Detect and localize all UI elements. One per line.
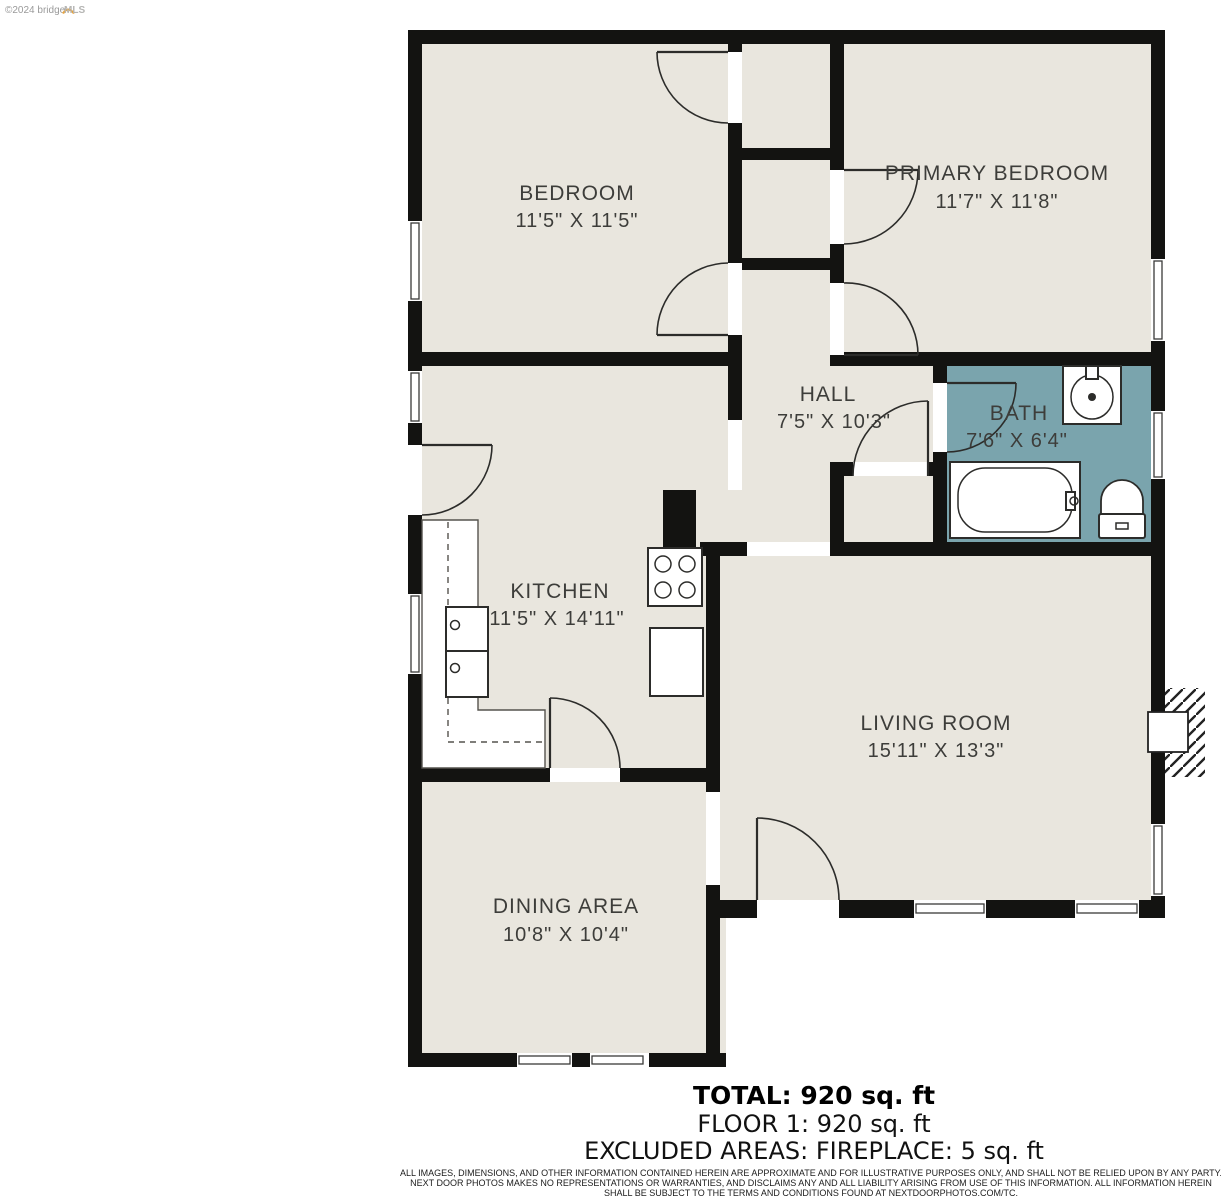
bedroom-dims: 11'5" X 11'5": [515, 210, 638, 232]
window-dining-bottom-1: [513, 1053, 576, 1067]
window-bath-right: [1151, 407, 1165, 483]
opening-primary-closet: [830, 170, 844, 244]
opening-front-entry: [757, 900, 839, 918]
summary: TOTAL: 920 sq. ft FLOOR 1: 920 sq. ft EX…: [584, 1081, 1044, 1165]
hall-label: HALL: [800, 383, 857, 406]
dining-area-dims: 10'8" X 10'4": [503, 924, 629, 946]
window-kitchen-left: [408, 590, 422, 678]
window-living-bottom-2: [1071, 900, 1143, 918]
chimney: [663, 490, 696, 548]
refrigerator: [650, 628, 703, 696]
toilet-bowl: [1101, 480, 1143, 514]
watermark: ©2024 bridge MLS: [5, 5, 85, 16]
opening-kitchen-dining: [550, 768, 620, 782]
wall-closet-divider-a: [742, 148, 830, 160]
opening-primary-entry: [830, 283, 844, 355]
living-room-dims: 15'11" X 13'3": [868, 740, 1005, 762]
wall-kitchen-living: [706, 542, 720, 782]
bath-dims: 7'6" X 6'4": [966, 430, 1068, 452]
disclaimer: ALL IMAGES, DIMENSIONS, AND OTHER INFORM…: [400, 1168, 1221, 1198]
hall-dims: 7'5" X 10'3": [777, 411, 891, 433]
disclaimer-line-1: ALL IMAGES, DIMENSIONS, AND OTHER INFORM…: [400, 1168, 1221, 1178]
window-kitchen-upper-left: [408, 367, 422, 427]
kitchen-label: KITCHEN: [510, 580, 609, 603]
sink-faucet: [1086, 366, 1098, 379]
floorplan: BEDROOM 11'5" X 11'5" PRIMARY BEDROOM 11…: [0, 0, 1221, 1198]
excluded-area-text: EXCLUDED AREAS: FIREPLACE: 5 sq. ft: [584, 1137, 1044, 1165]
window-living-bottom-1: [910, 900, 990, 918]
wall-closet-divider-b: [742, 258, 830, 270]
window-dining-bottom-2: [586, 1053, 653, 1067]
kitchen-dims: 11'5" X 14'11": [489, 608, 624, 630]
opening-hall-living: [747, 542, 830, 556]
disclaimer-line-2: NEXT DOOR PHOTOS MAKES NO REPRESENTATION…: [410, 1178, 1212, 1188]
fireplace-firebox: [1148, 712, 1188, 752]
bedroom-label: BEDROOM: [519, 182, 635, 205]
sink-drain: [1088, 393, 1096, 401]
opening-bath: [933, 383, 947, 452]
opening-kitchen-side-door: [408, 445, 422, 515]
watermark-brand: MLS: [64, 5, 85, 16]
floor-area-text: FLOOR 1: 920 sq. ft: [697, 1110, 930, 1138]
opening-bedroom-entry: [728, 263, 742, 335]
wall-bedroom-kitchen: [408, 352, 742, 366]
wall-left: [408, 30, 422, 1067]
window-bedroom-left: [408, 217, 422, 305]
kitchen-sink-basin-2: [446, 651, 488, 697]
stove: [648, 548, 702, 606]
opening-dining-living: [706, 792, 720, 885]
dining-area-label: DINING AREA: [493, 895, 639, 918]
toilet-tank: [1099, 514, 1145, 538]
total-area-text: TOTAL: 920 sq. ft: [693, 1081, 935, 1110]
primary-bedroom-dims: 11'7" X 11'8": [935, 191, 1058, 213]
wall-hallcloset-left: [830, 462, 844, 556]
window-primary-right: [1151, 255, 1165, 345]
living-room-label: LIVING ROOM: [860, 712, 1011, 735]
bath-label: BATH: [990, 402, 1048, 425]
disclaimer-line-3: SHALL BE SUBJECT TO THE TERMS AND CONDIT…: [604, 1188, 1018, 1198]
watermark-copyright: ©2024 bridge: [5, 5, 66, 16]
opening-kitchen-hall: [728, 420, 742, 490]
opening-bedroom-closet: [728, 52, 742, 123]
window-living-right: [1151, 820, 1165, 900]
wall-top: [408, 30, 1165, 44]
opening-hall-closet: [853, 462, 928, 476]
primary-bedroom-label: PRIMARY BEDROOM: [885, 162, 1109, 185]
